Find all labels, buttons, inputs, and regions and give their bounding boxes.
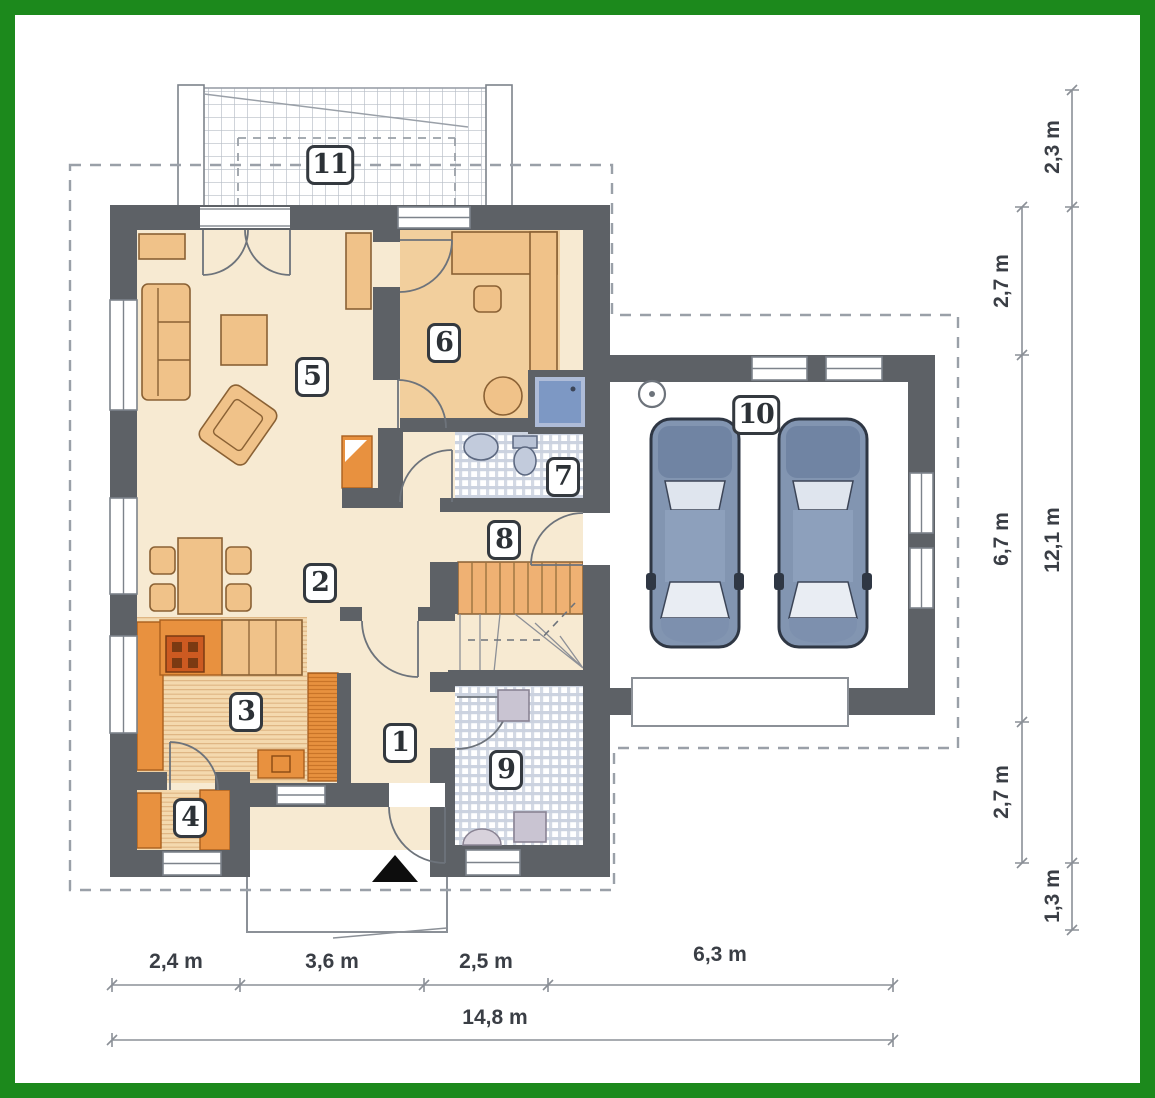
room-badge-4: 4 (173, 798, 207, 838)
room-badge-6: 6 (427, 323, 461, 363)
coffee-table (221, 315, 267, 365)
room-badge-9: 9 (489, 750, 523, 790)
dim-label-bottom-2: 3,6 m (305, 950, 359, 974)
washing-machine-icon (498, 690, 529, 721)
car-icon (646, 419, 744, 647)
room-badge-1: 1 (383, 723, 417, 763)
wall-segment (135, 772, 167, 790)
room-badge-8: 8 (487, 520, 521, 560)
room-badge-7: 7 (546, 457, 580, 497)
room-badge-11: 11 (306, 145, 354, 185)
wall-segment (110, 205, 583, 230)
wall-segment (373, 230, 400, 242)
room-badge-5: 5 (295, 357, 329, 397)
wall-segment (340, 607, 362, 621)
pantry-shelf (137, 793, 161, 848)
toilet-icon (513, 436, 537, 475)
dim-label-bottom-4: 6,3 m (693, 943, 747, 967)
wall-segment (342, 488, 402, 508)
round-chair (484, 377, 522, 415)
dim-label-bottom-1: 2,4 m (149, 950, 203, 974)
wall-segment (440, 498, 583, 512)
stairs-upper-flight (458, 562, 583, 614)
room-badge-2: 2 (303, 563, 337, 603)
sofa (142, 284, 190, 400)
wall-segment (448, 670, 583, 686)
dim-label-right-inner-1: 2,7 m (990, 254, 1014, 308)
bath-cabinet (514, 812, 546, 842)
wall-segment (908, 355, 935, 715)
wall-segment (215, 772, 250, 790)
wall-segment (400, 418, 532, 432)
wall-segment (337, 673, 351, 783)
dim-label-right-outer-3: 1,3 m (1041, 869, 1065, 923)
garage-door-gap (583, 513, 610, 565)
wall-segment (373, 287, 400, 380)
tv-cabinet (346, 233, 371, 309)
dim-label-right-outer-1: 2,3 m (1041, 120, 1065, 174)
room-badge-10: 10 (732, 395, 780, 435)
stool (474, 286, 501, 312)
floor-plan-page: 1 2 3 4 5 6 7 8 9 10 11 2,4 m 3,6 m 2,5 … (0, 0, 1155, 1098)
sink-icon (464, 434, 498, 460)
car-icon (774, 419, 872, 647)
cabinet (139, 234, 185, 259)
stove-icon (166, 636, 204, 672)
garage-gate (632, 678, 848, 726)
front-door-gap (389, 783, 445, 807)
fireplace (342, 436, 372, 488)
dim-label-right-inner-2: 6,7 m (990, 512, 1014, 566)
floor-plan-svg (0, 0, 1155, 1098)
dim-label-right-inner-3: 2,7 m (990, 765, 1014, 819)
room-badge-3: 3 (229, 692, 263, 732)
shower-icon (537, 379, 583, 425)
dim-label-right-outer-2: 12,1 m (1041, 507, 1065, 572)
wall-segment (430, 562, 458, 614)
dim-label-bottom-3: 2,5 m (459, 950, 513, 974)
french-door-sill (200, 207, 290, 228)
dim-label-bottom-total: 14,8 m (462, 1006, 527, 1030)
